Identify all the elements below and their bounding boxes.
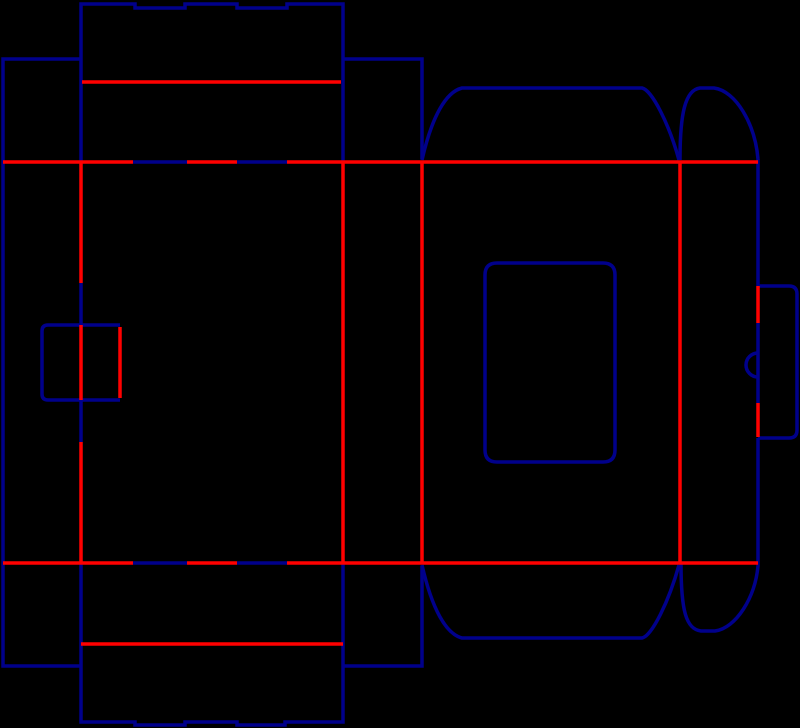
top-ear-flap bbox=[680, 88, 758, 160]
bottom-dust-flap-rect bbox=[343, 566, 422, 666]
window-cutout bbox=[485, 263, 615, 462]
bottom-ear-flap bbox=[681, 563, 758, 631]
dieline-stage bbox=[0, 0, 800, 728]
thumb-notch-arc bbox=[746, 353, 758, 377]
top-trapezoid-dust-flap bbox=[422, 88, 679, 160]
cut-lines-group bbox=[3, 4, 797, 725]
bottom-trapezoid-dust-flap bbox=[422, 565, 679, 638]
top-dust-flap-rect bbox=[343, 59, 422, 159]
crease-lines-group bbox=[3, 82, 758, 644]
dieline-canvas bbox=[0, 0, 800, 728]
tuck-lock-tab-outline bbox=[758, 286, 797, 438]
